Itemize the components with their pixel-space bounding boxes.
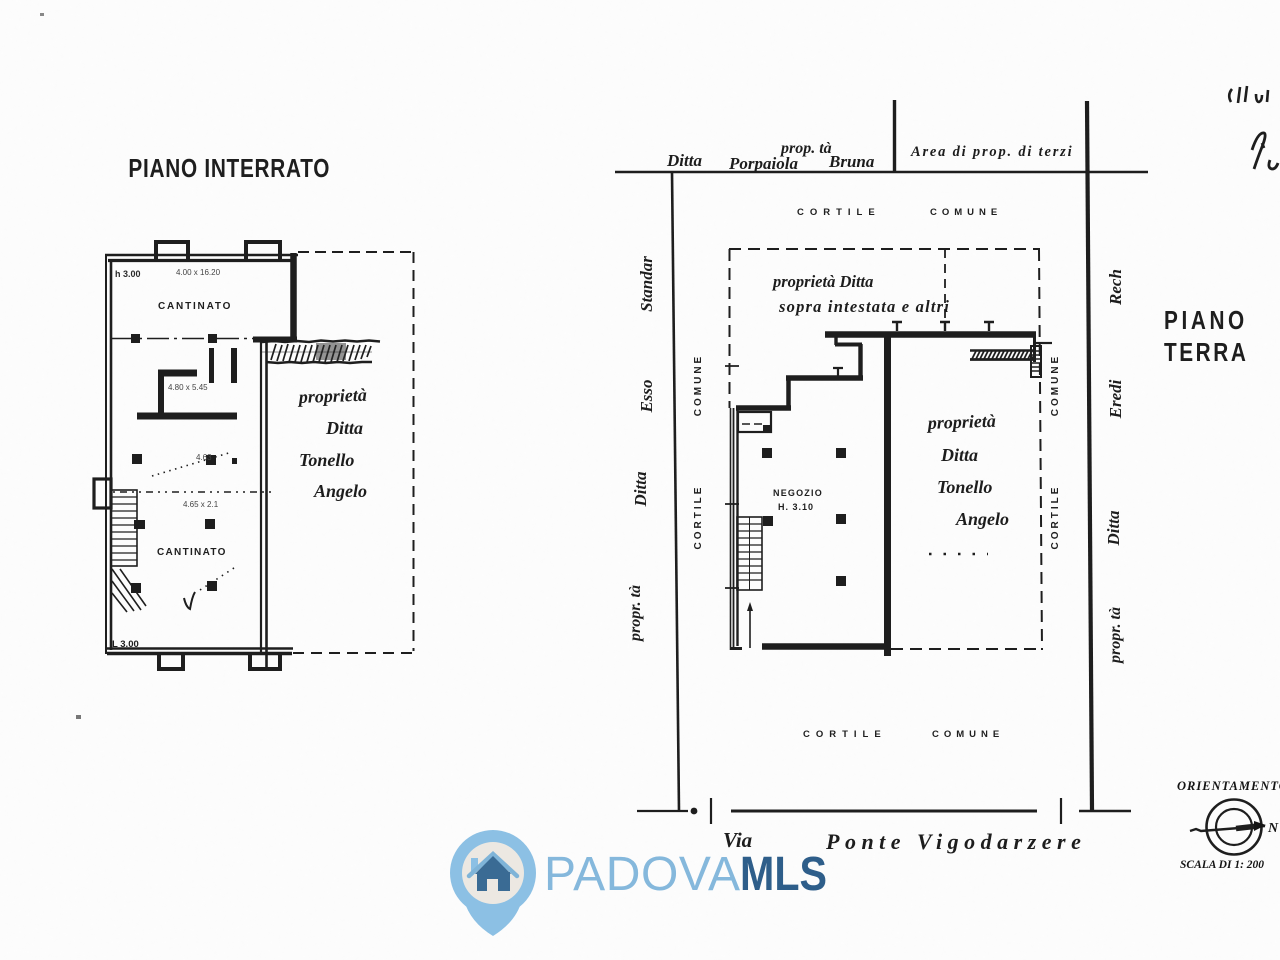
svg-text:proprietà Ditta: proprietà Ditta: [771, 272, 873, 291]
svg-text:Standar: Standar: [637, 256, 656, 312]
svg-text:N: N: [1267, 821, 1279, 836]
svg-text:CORTILE: CORTILE: [693, 485, 704, 550]
svg-text:COMUNE: COMUNE: [1050, 354, 1061, 416]
svg-text:COMUNE: COMUNE: [932, 729, 1004, 740]
svg-text:Tonello: Tonello: [299, 450, 354, 470]
svg-text:CORTILE: CORTILE: [1050, 485, 1061, 550]
svg-text:NEGOZIO: NEGOZIO: [773, 488, 823, 498]
svg-text:Angelo: Angelo: [955, 509, 1009, 529]
svg-text:Esso: Esso: [637, 379, 656, 413]
svg-text:SCALA DI 1: 200: SCALA DI 1: 200: [1180, 859, 1264, 871]
svg-text:Angelo: Angelo: [313, 481, 367, 501]
svg-text:prop. tà: prop. tà: [779, 140, 832, 157]
svg-text:Ditta: Ditta: [666, 151, 702, 170]
svg-text:PADOVA: PADOVA: [544, 848, 740, 901]
svg-text:PIANO INTERRATO: PIANO INTERRATO: [128, 154, 330, 183]
svg-text:L 3.00: L 3.00: [112, 639, 139, 650]
svg-text:Ponte Vigodarzere: Ponte Vigodarzere: [825, 829, 1086, 854]
svg-text:Area di prop. di terzi: Area di prop. di terzi: [910, 144, 1073, 160]
svg-text:TERRA: TERRA: [1164, 338, 1248, 367]
svg-text:CORTILE: CORTILE: [797, 207, 881, 218]
svg-text:Ditta: Ditta: [631, 471, 650, 507]
svg-text:propr. tà: propr. tà: [1107, 607, 1124, 665]
svg-text:COMUNE: COMUNE: [930, 207, 1002, 218]
svg-text:Ditta: Ditta: [1104, 510, 1123, 546]
svg-text:proprietà: proprietà: [925, 411, 996, 433]
svg-text:4.63: 4.63: [196, 453, 212, 462]
svg-text:4.65 x 2.1: 4.65 x 2.1: [183, 500, 219, 509]
svg-text:Ditta: Ditta: [940, 445, 978, 465]
svg-text:4.80 x 5.45: 4.80 x 5.45: [168, 383, 208, 392]
svg-text:ORIENTAMENTO: ORIENTAMENTO: [1177, 779, 1280, 793]
svg-text:MLS: MLS: [740, 848, 827, 901]
svg-text:H. 3.10: H. 3.10: [778, 502, 814, 512]
svg-text:CANTINATO: CANTINATO: [157, 547, 227, 558]
svg-text:CORTILE: CORTILE: [803, 729, 887, 740]
svg-text:Tonello: Tonello: [937, 477, 992, 497]
svg-text:h 3.00: h 3.00: [115, 269, 141, 279]
svg-text:CANTINATO: CANTINATO: [158, 301, 232, 312]
svg-text:PIANO: PIANO: [1164, 306, 1248, 335]
svg-text:Eredi: Eredi: [1106, 379, 1125, 419]
svg-text:Bruna: Bruna: [828, 152, 875, 171]
svg-text:Ditta: Ditta: [325, 418, 363, 438]
svg-text:COMUNE: COMUNE: [693, 354, 704, 416]
svg-text:4.00 x 16.20: 4.00 x 16.20: [176, 268, 221, 277]
svg-text:proprietà: proprietà: [296, 385, 367, 407]
svg-text:sopra intestata e altri: sopra intestata e altri: [778, 297, 950, 316]
svg-text:Rech: Rech: [1106, 269, 1125, 306]
svg-text:propr. tà: propr. tà: [627, 585, 644, 643]
